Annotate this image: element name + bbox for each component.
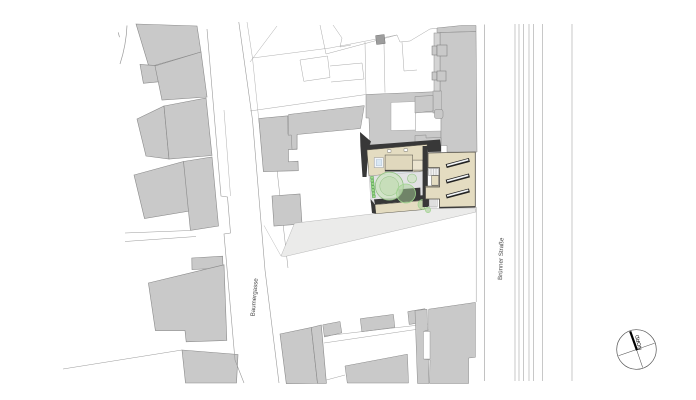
svg-text:Brünner Straße: Brünner Straße — [497, 237, 505, 280]
